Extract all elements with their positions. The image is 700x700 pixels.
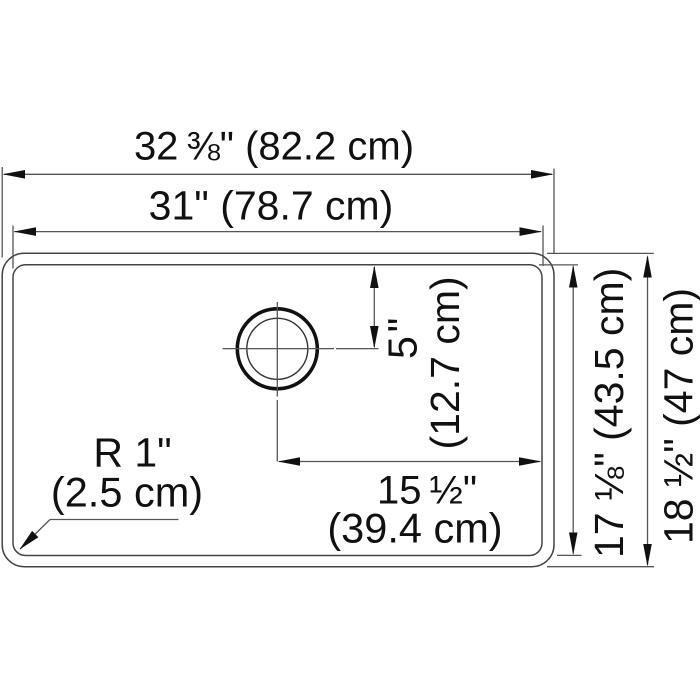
svg-text:31" (78.7 cm): 31" (78.7 cm) [149, 182, 394, 228]
svg-text:(39.4 cm): (39.4 cm) [327, 504, 502, 551]
svg-text:18 ½" (47 cm): 18 ½" (47 cm) [656, 288, 700, 544]
svg-text:32 ⅜" (82.2 cm): 32 ⅜" (82.2 cm) [134, 125, 414, 169]
svg-text:17 ⅛" (43.5 cm): 17 ⅛" (43.5 cm) [586, 268, 632, 558]
svg-text:(12.7 cm): (12.7 cm) [422, 276, 468, 449]
svg-text:(2.5 cm): (2.5 cm) [51, 469, 203, 516]
svg-text:5": 5" [380, 314, 426, 359]
